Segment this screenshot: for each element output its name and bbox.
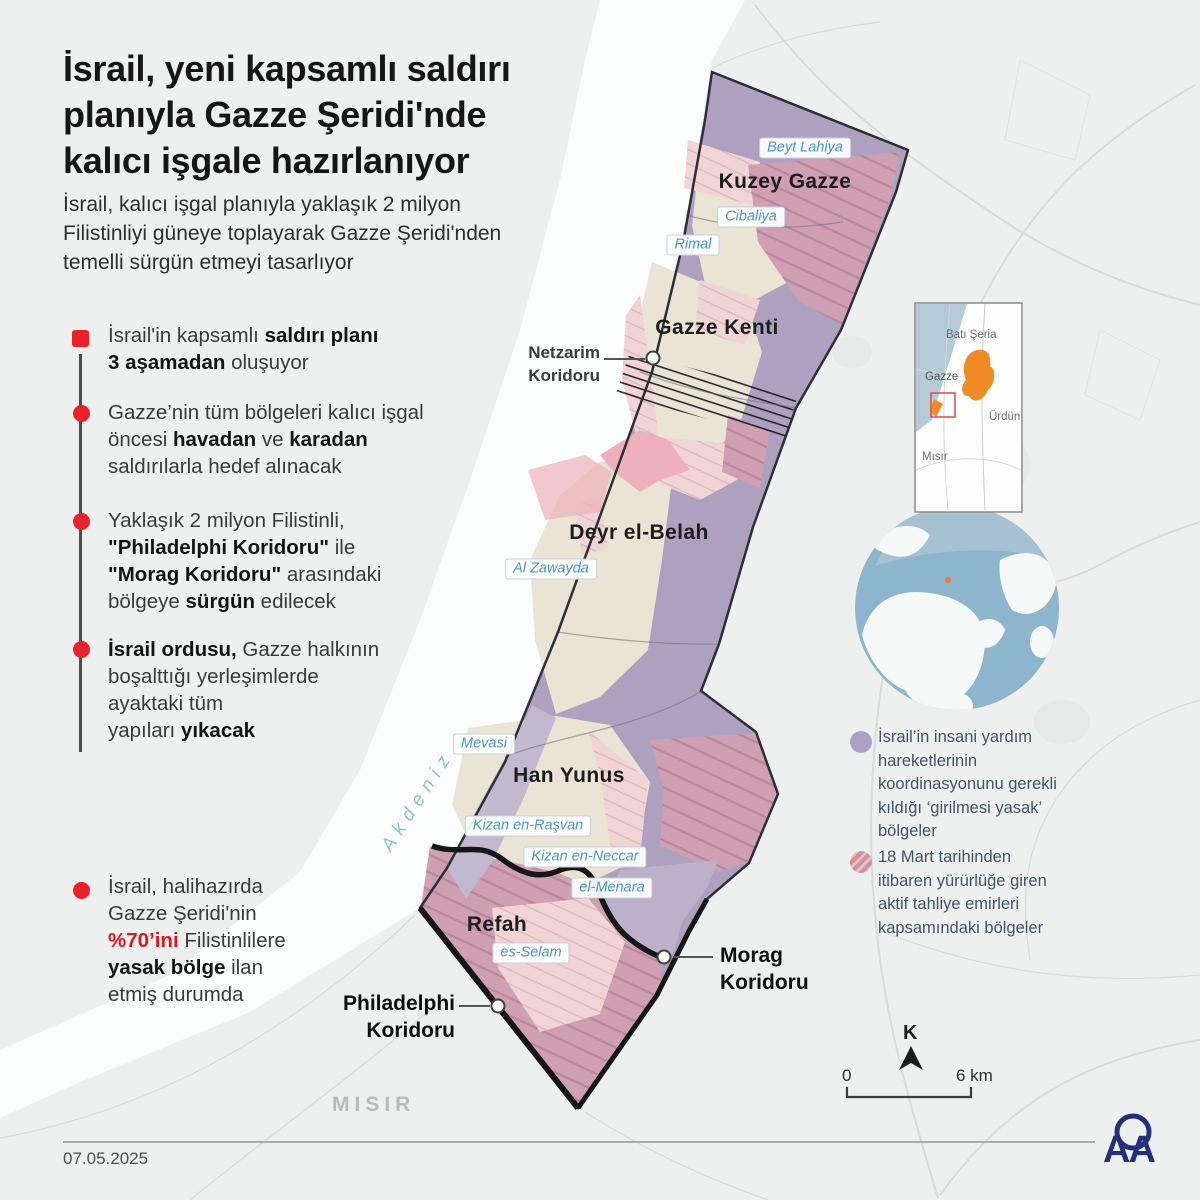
page-subtitle: İsrail, kalıcı işgal planıyla yaklaşık 2…	[63, 190, 501, 277]
netzarim-corridor-label: Netzarim Koridoru	[528, 341, 600, 387]
legend-swatch-striped	[850, 851, 872, 873]
inset-label-gazze: Gazze	[925, 371, 958, 383]
bullet-item: İsrail, halihazırda Gazze Şeridi'nin %70…	[108, 873, 388, 1008]
country-label-egypt: MISIR	[332, 1093, 415, 1117]
region-label-deyr-el-belah: Deyr el-Belah	[569, 521, 708, 545]
bullet-item: İsrail ordusu, Gazze halkının boşalttığı…	[108, 636, 448, 744]
place-label-mevasi: Mevasi	[453, 734, 515, 755]
region-label-kuzey-gazze: Kuzey Gazze	[719, 170, 852, 194]
scale-start-label: 0	[842, 1066, 851, 1086]
place-label-rimal: Rimal	[666, 235, 719, 256]
bullet-square-marker	[72, 330, 89, 347]
inset-label-urdun: Ürdün	[989, 411, 1020, 423]
region-label-refah: Refah	[467, 913, 527, 937]
legend-swatch-purple	[850, 731, 872, 753]
north-arrow-icon	[899, 1046, 923, 1070]
bullet-dot-marker	[73, 513, 90, 530]
infographic-page: { "header": { "title": "İsrail, yeni kap…	[0, 0, 1200, 1200]
place-label-el-menara: el-Menara	[571, 878, 652, 899]
inset-label-bati-seria: Batı Şeria	[946, 329, 997, 341]
region-label-han-yunus: Han Yunus	[513, 764, 625, 788]
region-label-gazze-kenti: Gazze Kenti	[655, 316, 778, 340]
aa-agency-logo: AA	[1100, 1110, 1166, 1174]
bullet-item: Yaklaşık 2 milyon Filistinli, "Philadelp…	[108, 507, 448, 615]
place-label-al-zawayda: Al Zawayda	[505, 559, 597, 580]
morag-corridor-label: Morag Koridoru	[720, 942, 809, 996]
bullet-dot-marker	[73, 405, 90, 422]
place-label-es-selam: es-Selam	[492, 943, 569, 964]
place-label-cibaliya: Cibaliya	[717, 207, 785, 228]
north-label: K	[903, 1022, 917, 1045]
philadelphi-marker	[492, 1000, 505, 1013]
bullet-item: İsrail'in kapsamlı saldırı planı 3 aşama…	[108, 322, 438, 376]
place-label-kizan-en-rasvan: Kizan en-Raşvan	[465, 816, 591, 837]
publication-date: 07.05.2025	[63, 1149, 148, 1169]
bullet-dot-marker	[73, 882, 90, 899]
netzarim-marker	[647, 352, 660, 365]
place-label-beyt-lahiya: Beyt Lahiya	[759, 138, 851, 159]
page-title: İsrail, yeni kapsamlı saldırı planıyla G…	[63, 46, 511, 184]
scale-end-label: 6 km	[956, 1066, 993, 1086]
morag-marker	[658, 951, 671, 964]
place-label-kizan-en-neccar: Kizan en-Neccar	[523, 847, 646, 868]
aa-logo-text: AA	[1103, 1129, 1155, 1171]
bullet-item: Gazze’nin tüm bölgeleri kalıcı işgal önc…	[108, 399, 488, 480]
philadelphi-corridor-label: Philadelphi Koridoru	[343, 990, 455, 1044]
legend-item-striped-text: 18 Mart tarihinden itibaren yürürlüğe gi…	[878, 846, 1093, 940]
locator-globe	[855, 506, 1059, 723]
compass-and-scale	[847, 1046, 971, 1097]
footer-divider	[63, 1141, 1095, 1143]
legend-item-purple-text: İsrail’in insani yardım hareketlerinin k…	[878, 726, 1093, 844]
inset-label-misir: Mısır	[922, 451, 948, 463]
bullet-dot-marker	[73, 641, 90, 658]
